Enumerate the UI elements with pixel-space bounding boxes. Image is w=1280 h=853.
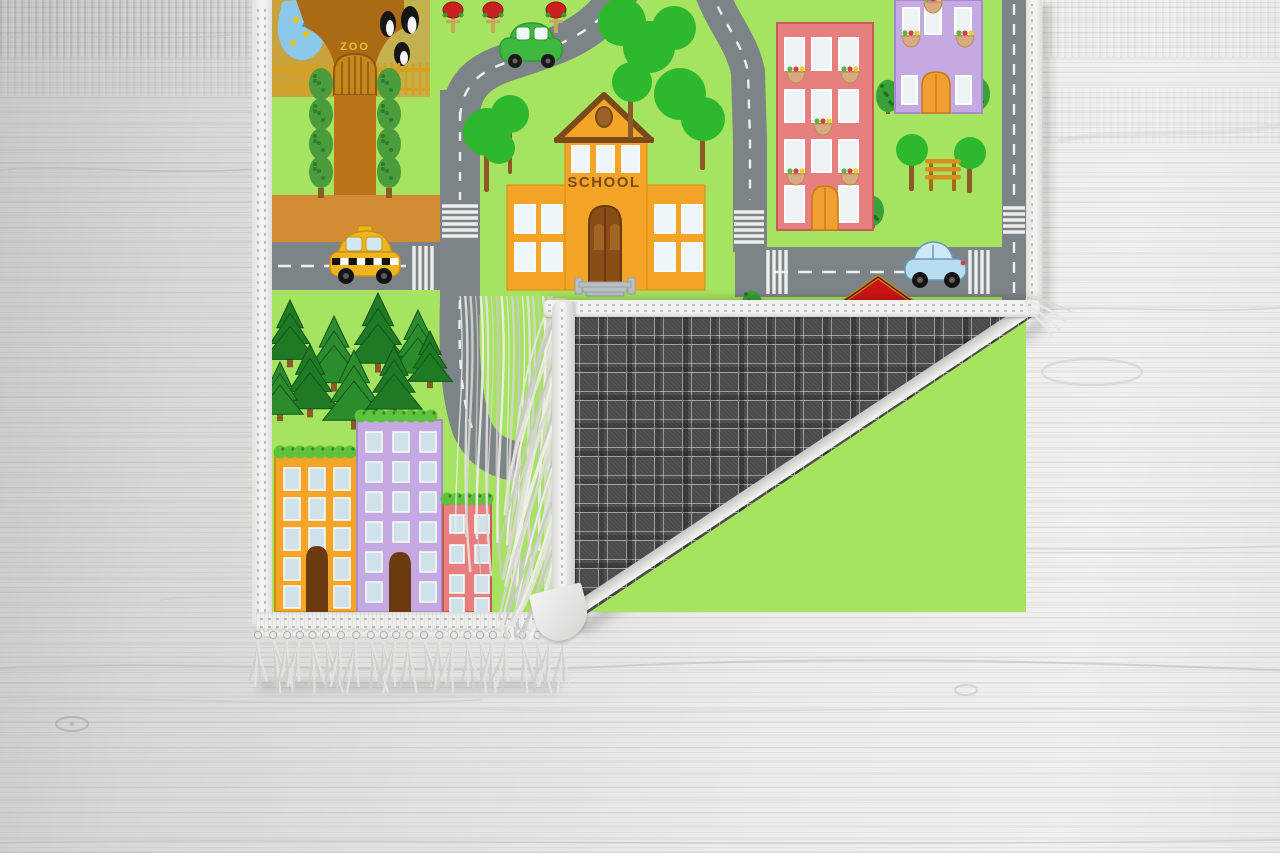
zoo-path-vertical	[334, 95, 376, 195]
school-sign: SCHOOL	[567, 174, 640, 191]
orange-apartment-building	[274, 446, 359, 613]
product-photo-scene: ZOO	[0, 0, 1280, 853]
pink-apartment-building	[777, 23, 873, 230]
purple-house	[895, 0, 982, 113]
rug-right-binding	[1026, 0, 1042, 314]
purple-apartment-building	[355, 410, 443, 613]
orange-building-door	[306, 546, 328, 612]
zoo-area: ZOO	[272, 0, 430, 97]
taxi-checker-band	[332, 258, 398, 265]
rug-left-binding	[252, 0, 272, 624]
zoo-gate: ZOO	[334, 41, 376, 95]
fold-corner-strands	[1022, 294, 1076, 342]
school-clock	[596, 107, 612, 127]
fold-top-binding	[544, 300, 1040, 317]
fold-left-binding	[552, 302, 575, 604]
rug-right-shadow	[1042, 4, 1056, 314]
purple-building-door	[389, 552, 411, 612]
zoo-sign: ZOO	[340, 41, 370, 53]
